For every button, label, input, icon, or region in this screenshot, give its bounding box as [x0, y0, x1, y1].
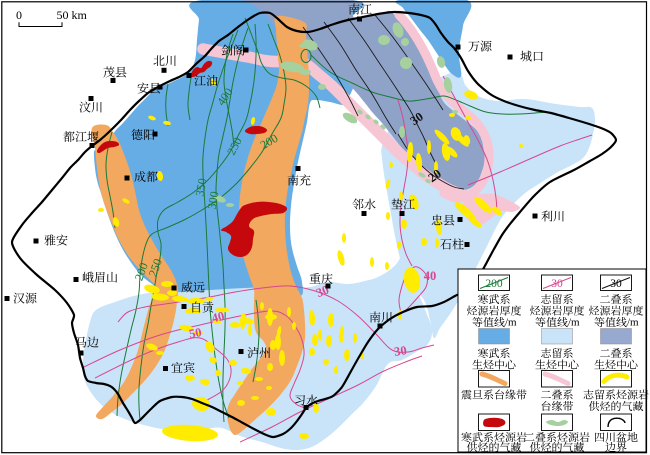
svg-text:/m: /m: [505, 317, 517, 329]
svg-text:50 km: 50 km: [57, 8, 88, 22]
svg-text:30: 30: [610, 278, 622, 290]
svg-text:50: 50: [188, 325, 203, 341]
svg-text:30: 30: [393, 343, 407, 359]
svg-text:30: 30: [551, 278, 563, 290]
svg-text:/m: /m: [568, 317, 580, 329]
svg-text:/m: /m: [627, 317, 639, 329]
svg-text:40: 40: [424, 269, 437, 283]
svg-text:200: 200: [485, 278, 503, 290]
svg-text:0: 0: [16, 8, 22, 22]
